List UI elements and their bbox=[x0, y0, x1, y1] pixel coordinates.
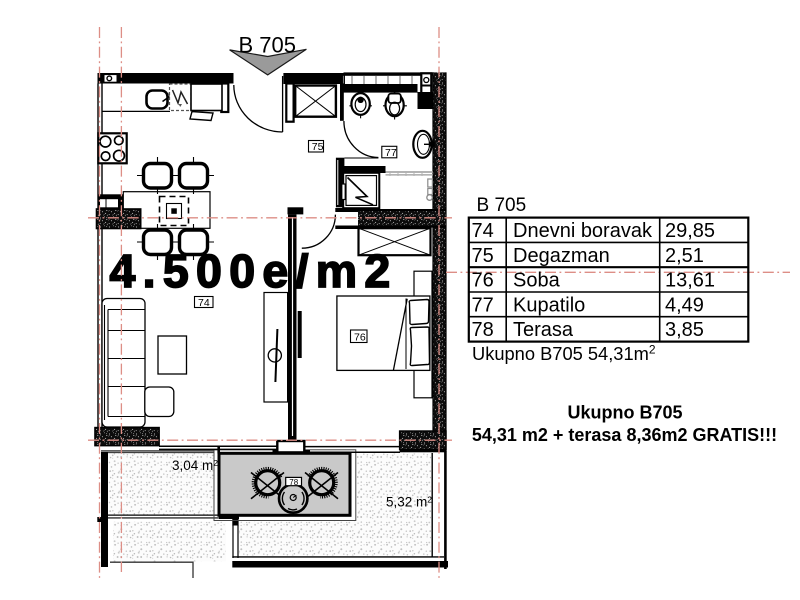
svg-text:75: 75 bbox=[472, 245, 494, 267]
svg-text:4,49: 4,49 bbox=[665, 294, 704, 316]
svg-text:13,61: 13,61 bbox=[665, 270, 715, 292]
svg-text:5,32 m2: 5,32 m2 bbox=[386, 495, 432, 510]
svg-text:B 705: B 705 bbox=[239, 33, 297, 58]
svg-text:Degazman: Degazman bbox=[513, 245, 610, 267]
svg-text:74: 74 bbox=[472, 220, 494, 242]
svg-text:75: 75 bbox=[312, 141, 324, 153]
svg-text:74: 74 bbox=[198, 297, 210, 309]
svg-text:Soba: Soba bbox=[513, 270, 561, 292]
svg-text:Terasa: Terasa bbox=[513, 319, 574, 341]
svg-text:76: 76 bbox=[354, 331, 366, 343]
svg-text:3,04 m2: 3,04 m2 bbox=[172, 458, 218, 473]
svg-text:4.500e/m2: 4.500e/m2 bbox=[110, 245, 398, 297]
svg-text:77: 77 bbox=[472, 294, 494, 316]
svg-text:54,31 m2 + terasa 8,36m2 GRATI: 54,31 m2 + terasa 8,36m2 GRATIS!!! bbox=[472, 425, 777, 445]
svg-text:B 705: B 705 bbox=[477, 195, 527, 216]
svg-text:3,85: 3,85 bbox=[665, 319, 704, 341]
svg-text:Dnevni boravak: Dnevni boravak bbox=[513, 220, 653, 242]
svg-text:29,85: 29,85 bbox=[665, 220, 715, 242]
svg-text:78: 78 bbox=[289, 478, 298, 487]
svg-text:Ukupno B705: Ukupno B705 bbox=[567, 403, 682, 423]
svg-text:Kupatilo: Kupatilo bbox=[513, 294, 585, 316]
svg-text:77: 77 bbox=[385, 147, 397, 159]
svg-text:76: 76 bbox=[472, 270, 494, 292]
svg-text:78: 78 bbox=[472, 319, 494, 341]
svg-text:Ukupno B705 54,31m2: Ukupno B705 54,31m2 bbox=[472, 343, 656, 365]
svg-text:2,51: 2,51 bbox=[665, 245, 704, 267]
